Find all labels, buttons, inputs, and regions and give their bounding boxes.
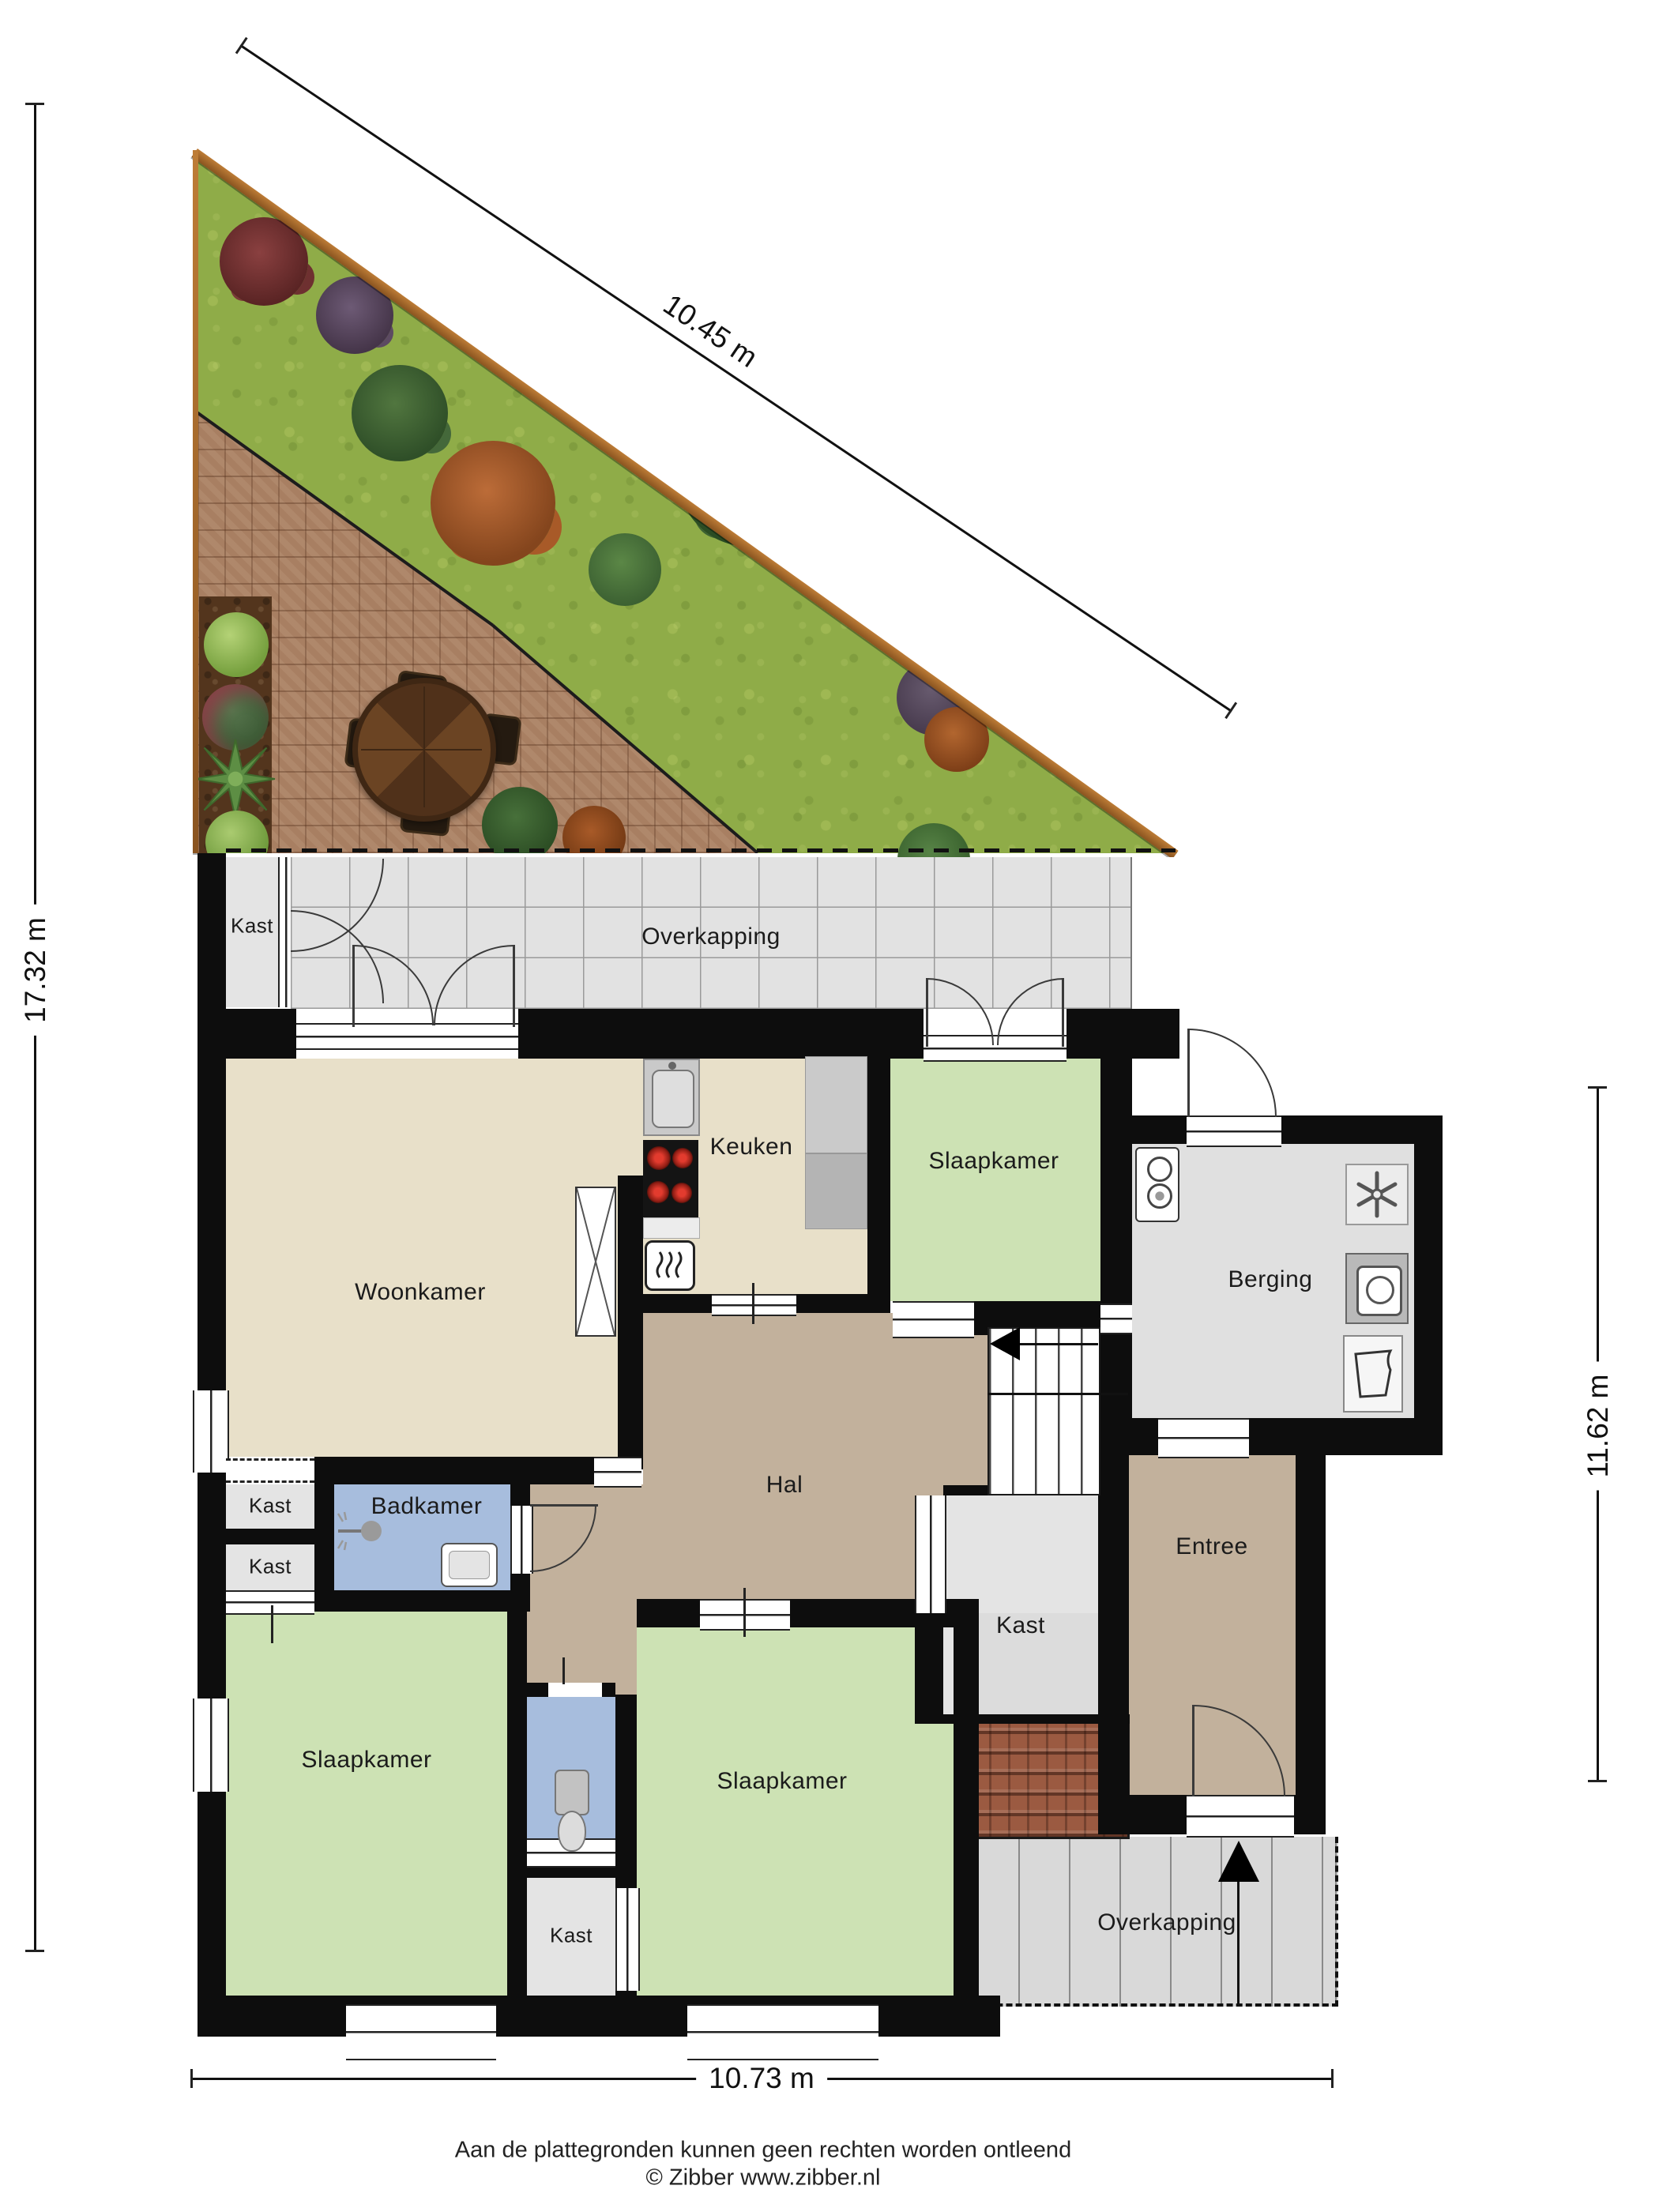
- door-entree: [1187, 1795, 1294, 1838]
- room-label-kast-trap: Kast: [996, 1612, 1045, 1639]
- wall: [1100, 1009, 1132, 1455]
- window-berging-entree: [1158, 1418, 1249, 1458]
- stair-direction-line: [1018, 1343, 1098, 1345]
- wall: [1294, 1795, 1326, 1834]
- plant-spiky: [194, 738, 276, 820]
- window-kast2-slaapkamer: [226, 1590, 314, 1615]
- room-label-hal: Hal: [766, 1472, 803, 1499]
- wall: [915, 1613, 943, 1717]
- burner-icon: [672, 1148, 693, 1168]
- boiler-dial: [1147, 1183, 1172, 1209]
- wall: [314, 1457, 596, 1484]
- floorplan-canvas: 10.45 m 17.32 m 11.62 m 10.73 m: [0, 0, 1659, 2212]
- sink-inner: [449, 1551, 490, 1579]
- dimension-label-right: 11.62 m: [1580, 1362, 1616, 1491]
- wall: [314, 1457, 334, 1612]
- room-label-kast-top: Kast: [231, 914, 273, 939]
- wall: [518, 1009, 924, 1059]
- dimension-tick: [235, 37, 247, 54]
- window-tick: [752, 1283, 754, 1324]
- footer-copyright: © Zibber www.zibber.nl: [646, 2165, 881, 2191]
- room-label-kast-links-1: Kast: [249, 1494, 292, 1518]
- room-woonkamer: [226, 1059, 618, 1457]
- room-label-overkapping-top: Overkapping: [641, 924, 781, 950]
- door-kast-onder: [615, 1888, 640, 1991]
- room-label-slaapkamer-linksonder: Slaapkamer: [301, 1747, 431, 1774]
- washer-door: [1356, 1266, 1402, 1316]
- entrance-arrow-icon: [1218, 1841, 1259, 1882]
- counter: [643, 1217, 700, 1239]
- faucet-icon: [668, 1062, 676, 1070]
- wall: [197, 1996, 1000, 2037]
- washer-drum: [1366, 1276, 1394, 1304]
- room-label-kast-links-2: Kast: [249, 1555, 292, 1579]
- burner-icon: [647, 1181, 669, 1203]
- room-label-kast-onder: Kast: [550, 1924, 592, 1948]
- room-label-slaapkamer-rechtsboven: Slaapkamer: [928, 1148, 1059, 1175]
- wall: [637, 1599, 700, 1627]
- window-slaapkamer-rechtsboven: [893, 1301, 974, 1338]
- dimension-label-left: 17.32 m: [17, 905, 54, 1036]
- dimension-tick: [1588, 1086, 1607, 1089]
- wall: [510, 1574, 530, 1590]
- oven-icon: [645, 1240, 695, 1291]
- tall-cabinet: [805, 1056, 867, 1153]
- room-label-slaapkamer-midden: Slaapkamer: [717, 1768, 847, 1795]
- wall: [507, 1612, 527, 1996]
- garden-fence-left: [193, 150, 198, 853]
- window-tick: [562, 1657, 565, 1684]
- window-tick: [743, 1588, 746, 1637]
- tall-cabinet-lower: [805, 1153, 867, 1229]
- tree-darkgreen-large: [678, 404, 820, 547]
- room-label-keuken: Keuken: [710, 1134, 793, 1161]
- wall: [527, 1683, 548, 1697]
- door-leaf: [1062, 978, 1064, 1047]
- door-kast-trap: [915, 1495, 946, 1613]
- sink-basin: [652, 1070, 694, 1128]
- tree-green-small: [589, 533, 661, 606]
- stair-rail-line: [987, 1393, 1128, 1395]
- tree-orange: [431, 441, 555, 566]
- wall: [954, 1627, 979, 1996]
- room-slaapkamer-rechtsboven: [890, 1059, 1100, 1301]
- window-woonkamer-links: [193, 1390, 229, 1473]
- garden-table: [352, 678, 496, 822]
- cabinet-x-icon: [575, 1187, 616, 1337]
- dimension-tick: [1331, 2069, 1334, 2088]
- wall: [1098, 1455, 1129, 1834]
- door-berging: [1187, 1115, 1281, 1147]
- door-leaf: [926, 978, 928, 1047]
- dimension-tick: [1588, 1780, 1607, 1782]
- wall: [1414, 1115, 1443, 1455]
- room-label-berging: Berging: [1228, 1266, 1313, 1293]
- room-slaapkamer-midden: [637, 1627, 954, 1996]
- dimension-tick: [25, 103, 44, 105]
- area-overkapping-top-margin: [1130, 857, 1177, 1009]
- opening-wc: [548, 1683, 602, 1697]
- dimension-label-bottom: 10.73 m: [696, 2060, 827, 2097]
- bathroom-sink: [441, 1543, 498, 1587]
- stove: [643, 1140, 698, 1217]
- wall: [602, 1683, 615, 1697]
- wall: [867, 1059, 890, 1301]
- opening-dashed-woonkamer: [226, 1458, 314, 1483]
- toilet-icon: [555, 1770, 589, 1815]
- window-overkapping-woonkamer: [296, 1023, 518, 1050]
- wall: [314, 1590, 530, 1612]
- stair-arrow-icon: [990, 1327, 1020, 1360]
- passage-woonkamer-keuken: [618, 1059, 643, 1176]
- utility-sink-icon: [1343, 1335, 1403, 1413]
- door-arc: [1188, 1029, 1277, 1117]
- door-leaf: [513, 945, 515, 1027]
- room-label-badkamer: Badkamer: [371, 1493, 483, 1520]
- wall: [1129, 1795, 1187, 1834]
- wall: [510, 1483, 530, 1506]
- kitchen-sink: [643, 1059, 700, 1136]
- wall: [643, 1294, 712, 1313]
- plant-bush-light: [204, 612, 269, 677]
- tree-darkgreen: [352, 365, 448, 461]
- footer-disclaimer: Aan de plattegronden kunnen geen rechten…: [455, 2138, 1071, 2164]
- window-slaapkamer1-onder: [346, 2004, 496, 2060]
- boiler-icon: [1135, 1147, 1179, 1222]
- door-woonkamer-hal: [594, 1457, 641, 1488]
- dimension-tick: [190, 2069, 193, 2088]
- opening-trap-berging: [1100, 1303, 1132, 1334]
- boundary-dashed: [226, 848, 1176, 852]
- wall: [1249, 1418, 1443, 1455]
- ventilation-fan-icon: [1345, 1164, 1409, 1225]
- window-tick: [271, 1605, 273, 1643]
- door-leaf: [1187, 1029, 1190, 1117]
- burner-icon: [671, 1183, 692, 1203]
- toilet-bowl: [558, 1811, 586, 1852]
- table-seam: [423, 687, 425, 807]
- dimension-tick: [25, 1950, 44, 1952]
- washing-machine-icon: [1345, 1253, 1409, 1324]
- room-label-woonkamer: Woonkamer: [355, 1279, 486, 1306]
- window-slaapkamer2-onder: [687, 2004, 878, 2060]
- room-label-overkapping-onder: Overkapping: [1097, 1909, 1236, 1936]
- door-leaf: [530, 1504, 598, 1507]
- table-seam: [361, 749, 482, 750]
- wall: [197, 1009, 296, 1059]
- entrance-path-line: [1237, 1882, 1240, 2005]
- room-slaapkamer-linksonder: [226, 1612, 507, 1996]
- dimension-tick: [1224, 702, 1236, 719]
- door-leaf: [1192, 1705, 1194, 1796]
- burner-icon: [647, 1146, 671, 1170]
- room-label-entree: Entree: [1176, 1533, 1247, 1560]
- wall: [790, 1599, 979, 1627]
- wall: [226, 1529, 314, 1544]
- wall: [618, 1176, 643, 1469]
- boiler-dial: [1147, 1157, 1172, 1182]
- wall: [1100, 1115, 1187, 1144]
- door-leaf: [352, 945, 355, 1027]
- wall: [1296, 1455, 1326, 1834]
- wall: [1100, 1418, 1158, 1455]
- window-slaapkamer-links: [193, 1698, 229, 1792]
